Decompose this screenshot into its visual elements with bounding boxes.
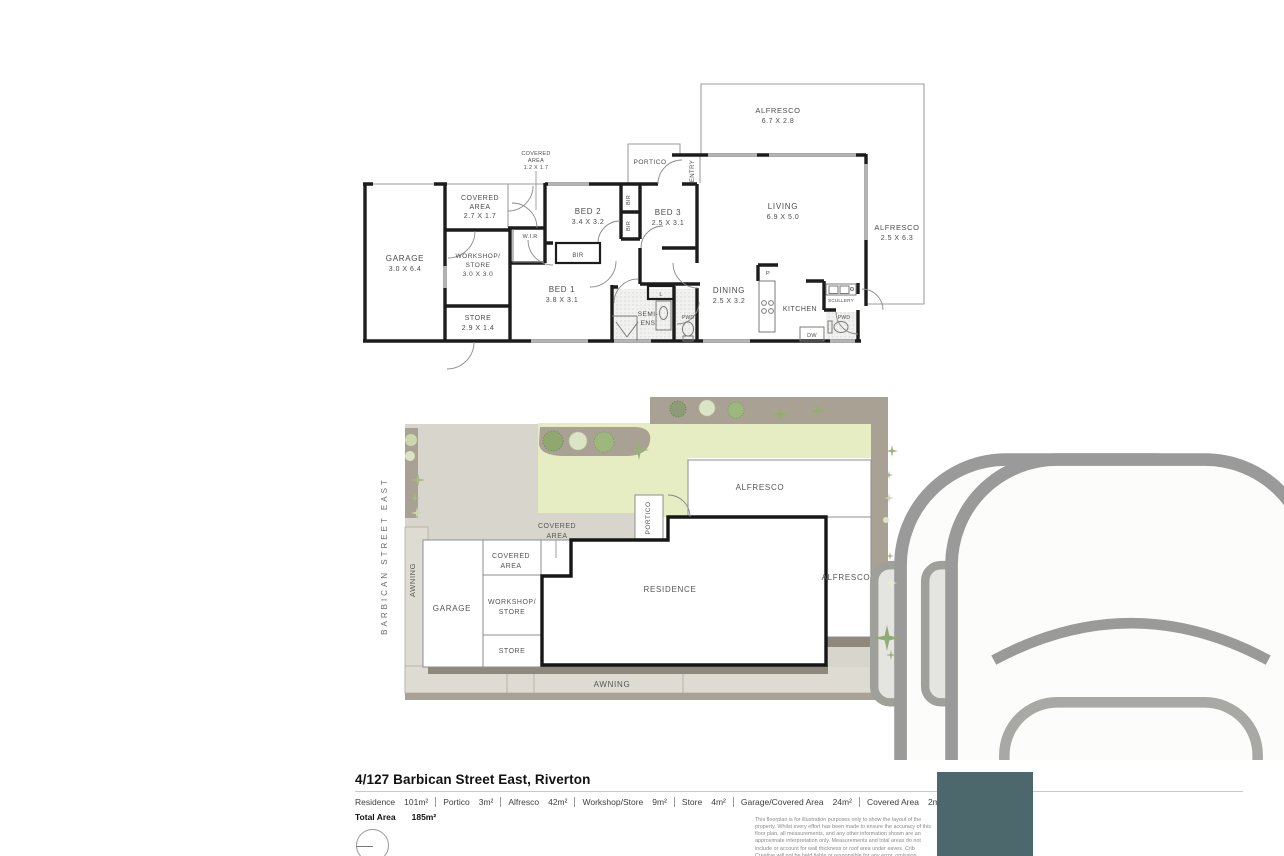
bush bbox=[699, 400, 715, 416]
area-label: Alfresco bbox=[508, 797, 539, 807]
area-label: Residence bbox=[355, 797, 395, 807]
area-label: Workshop/Store bbox=[582, 797, 643, 807]
area-label: Covered Area bbox=[867, 797, 919, 807]
bir-vert-label: BIR bbox=[626, 195, 632, 205]
floorplan-sheet: ALFRESCO 6.7 X 2.8 PORTICO ENTRY COVERED… bbox=[0, 0, 1284, 856]
area-value: 101m² bbox=[404, 797, 428, 807]
site-garage-label: GARAGE bbox=[433, 604, 471, 613]
bir-vert-label: BIR bbox=[626, 221, 632, 231]
site-workshop-l1: WORKSHOP/ bbox=[488, 599, 536, 606]
covered-garage-l1: COVERED bbox=[461, 195, 499, 202]
divider bbox=[435, 797, 436, 807]
bed1-label: BED 1 bbox=[549, 285, 576, 294]
awning-bottom-label: AWNING bbox=[594, 680, 631, 689]
stove-burner bbox=[769, 309, 774, 314]
area-value: 42m² bbox=[548, 797, 567, 807]
covered-garage-dims: 2.7 X 1.7 bbox=[464, 213, 497, 220]
bush bbox=[728, 402, 744, 418]
site-plan: BARBICAN STREET EAST AWNING GARAGE WORKS… bbox=[380, 397, 1284, 760]
disclaimer-text: This floorplan is for illustration purpo… bbox=[755, 817, 931, 856]
semi-ens-l2: ENS bbox=[641, 320, 656, 327]
garage-dims: 3.0 X 6.4 bbox=[389, 266, 422, 273]
pwd-label: PWD bbox=[682, 315, 694, 321]
semi-ens-l1: SEMI- bbox=[638, 311, 659, 318]
border-bottom bbox=[405, 693, 888, 700]
bed2-label: BED 2 bbox=[575, 207, 602, 216]
site-covered-outer-l2: AREA bbox=[546, 533, 567, 540]
store-dims: 2.9 X 1.4 bbox=[462, 325, 495, 332]
workshop-l1: WORKSHOP/ bbox=[456, 253, 501, 260]
plans-graphic: ALFRESCO 6.7 X 2.8 PORTICO ENTRY COVERED… bbox=[0, 0, 1284, 760]
covered-small-l2: AREA bbox=[528, 158, 544, 164]
total-value: 185m² bbox=[412, 812, 437, 822]
stove-burner bbox=[769, 301, 774, 306]
workshop-l2: STORE bbox=[466, 262, 491, 269]
site-covered-outer-l1: COVERED bbox=[538, 523, 576, 530]
divider bbox=[574, 797, 575, 807]
site-store-label: STORE bbox=[499, 648, 526, 655]
alfresco-top-dims: 6.7 X 2.8 bbox=[762, 118, 795, 125]
linen-label: L bbox=[659, 292, 662, 298]
store-label: STORE bbox=[465, 315, 492, 322]
bush bbox=[670, 401, 686, 417]
car bbox=[925, 460, 1284, 760]
alfresco-top-label: ALFRESCO bbox=[755, 106, 800, 115]
wir-label: W.I.R bbox=[523, 234, 538, 240]
dining-dims: 2.5 X 3.2 bbox=[713, 298, 746, 305]
bir-label: BIR bbox=[572, 253, 583, 259]
living-label: LIVING bbox=[768, 202, 798, 211]
covered-small-l1: COVERED bbox=[521, 151, 550, 157]
bush bbox=[594, 432, 614, 452]
workshop-dims: 3.0 X 3.0 bbox=[463, 271, 494, 278]
covered-area-door-arc bbox=[508, 186, 533, 211]
store-door-arc bbox=[447, 342, 474, 369]
stove-burner bbox=[762, 301, 767, 306]
sink-tap bbox=[851, 288, 854, 291]
bed3-dims: 2.5 X 3.1 bbox=[652, 220, 685, 227]
site-workshop-l2: STORE bbox=[499, 609, 526, 616]
sink-bowl bbox=[840, 286, 849, 294]
kitchen-label: KITCHEN bbox=[783, 306, 817, 313]
divider bbox=[733, 797, 734, 807]
kitchen-bench bbox=[759, 281, 775, 332]
site-alfresco-top-label: ALFRESCO bbox=[736, 483, 785, 492]
site-covered-inner-l1: COVERED bbox=[492, 553, 530, 560]
stove-burner bbox=[762, 309, 767, 314]
area-value: 24m² bbox=[833, 797, 852, 807]
alfresco-outline bbox=[701, 84, 924, 304]
hall2-door-arc bbox=[590, 261, 616, 287]
bed1-dims: 3.8 X 3.1 bbox=[546, 297, 579, 304]
area-value: 4m² bbox=[711, 797, 726, 807]
area-value: 9m² bbox=[652, 797, 667, 807]
garage-label: GARAGE bbox=[386, 254, 424, 263]
alfresco-right-dims: 2.5 X 6.3 bbox=[881, 235, 914, 242]
divider-rule bbox=[355, 791, 1243, 792]
site-covered-inner-l2: AREA bbox=[500, 563, 521, 570]
lawn-top bbox=[655, 424, 871, 458]
area-label: Store bbox=[682, 797, 702, 807]
hall-door-arc bbox=[512, 203, 537, 228]
portico-label: PORTICO bbox=[634, 159, 667, 166]
divider bbox=[859, 797, 860, 807]
entry-label: ENTRY bbox=[690, 160, 696, 182]
awning-left-label: AWNING bbox=[408, 563, 417, 597]
scullery-label: SCULLERY bbox=[828, 298, 854, 303]
site-portico-label: PORTICO bbox=[645, 502, 652, 535]
disclaimer: This floorplan is for illustration purpo… bbox=[755, 817, 935, 856]
area-label: Garage/Covered Area bbox=[741, 797, 824, 807]
sink-bowl bbox=[829, 286, 838, 294]
area-label: Portico bbox=[443, 797, 469, 807]
area-value: 3m² bbox=[479, 797, 494, 807]
bush bbox=[405, 434, 417, 446]
covered-garage-l2: AREA bbox=[469, 204, 490, 211]
bush bbox=[405, 451, 415, 461]
bush bbox=[543, 431, 563, 451]
site-alfresco-right-label: ALFRESCO bbox=[822, 573, 871, 582]
dining-label: DINING bbox=[713, 286, 745, 295]
divider bbox=[500, 797, 501, 807]
site-residence-label: RESIDENCE bbox=[644, 585, 697, 594]
bush bbox=[569, 432, 587, 450]
logo-block bbox=[937, 772, 1033, 856]
bed2-dims: 3.4 X 3.2 bbox=[572, 219, 605, 226]
covered-small-dims: 1.2 X 1.7 bbox=[524, 165, 549, 171]
divider bbox=[674, 797, 675, 807]
pwd2-label: PWD bbox=[838, 315, 850, 321]
total-label: Total Area bbox=[355, 812, 396, 822]
compass-needle bbox=[356, 846, 373, 848]
floor-plan: ALFRESCO 6.7 X 2.8 PORTICO ENTRY COVERED… bbox=[363, 84, 924, 369]
north-compass-icon bbox=[356, 829, 389, 856]
living-dims: 6.9 X 5.0 bbox=[767, 214, 800, 221]
bush bbox=[883, 517, 889, 523]
covered-paving bbox=[418, 513, 635, 540]
bed3-label: BED 3 bbox=[655, 208, 682, 217]
alfresco-right-label: ALFRESCO bbox=[874, 223, 919, 232]
pantry-label: P bbox=[766, 271, 770, 277]
street-label: BARBICAN STREET EAST bbox=[380, 477, 389, 635]
dw-label: DW bbox=[807, 333, 817, 339]
bed3-door-arc bbox=[641, 226, 663, 248]
